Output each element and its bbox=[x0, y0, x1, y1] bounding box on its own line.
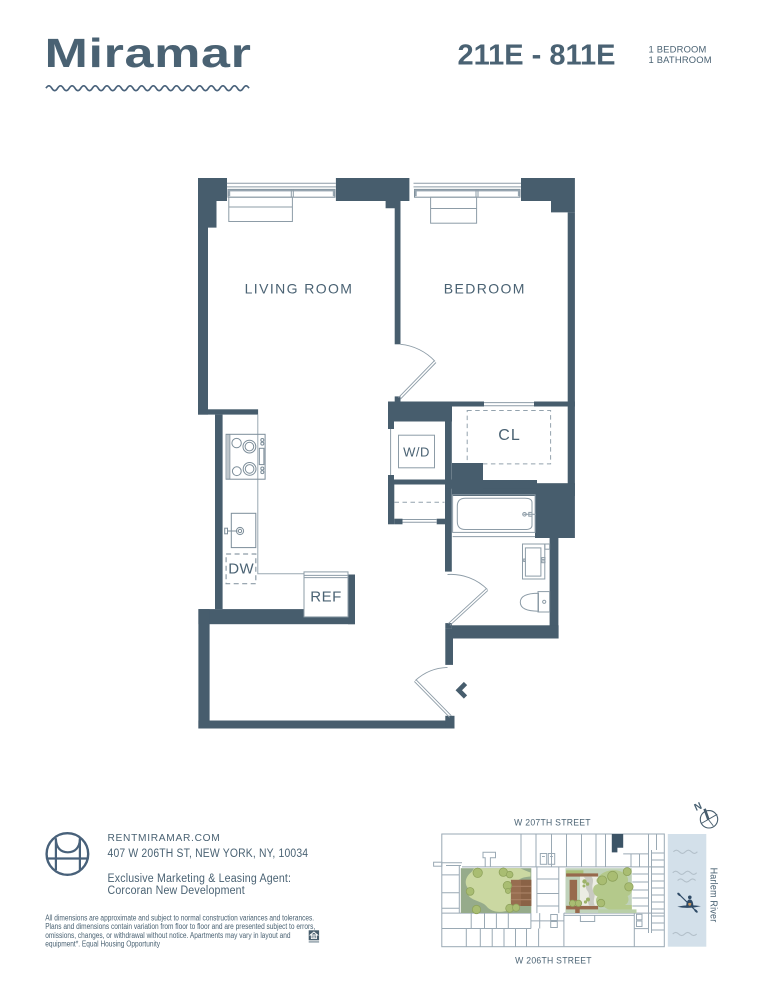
svg-text:BEDROOM: BEDROOM bbox=[444, 281, 526, 297]
svg-text:LIVING ROOM: LIVING ROOM bbox=[245, 281, 354, 297]
svg-text:Harlem River: Harlem River bbox=[708, 868, 719, 923]
svg-text:1 BEDROOM: 1 BEDROOM bbox=[649, 44, 707, 55]
svg-text:W 207TH STREET: W 207TH STREET bbox=[514, 817, 591, 828]
svg-text:DW: DW bbox=[228, 561, 254, 578]
svg-text:RENTMIRAMAR.COM: RENTMIRAMAR.COM bbox=[108, 833, 221, 844]
svg-text:CL: CL bbox=[498, 427, 520, 444]
svg-text:W/D: W/D bbox=[403, 445, 430, 460]
svg-text:Corcoran New Development: Corcoran New Development bbox=[108, 884, 246, 897]
svg-text:REF: REF bbox=[310, 589, 342, 606]
svg-text:211E - 811E: 211E - 811E bbox=[458, 40, 616, 72]
svg-text:W 206TH STREET: W 206TH STREET bbox=[515, 955, 592, 966]
svg-text:N: N bbox=[693, 801, 704, 814]
svg-text:1 BATHROOM: 1 BATHROOM bbox=[649, 54, 712, 65]
svg-text:Exclusive Marketing & Leasing: Exclusive Marketing & Leasing Agent: bbox=[108, 872, 292, 885]
svg-text:equipment*. Equal Housing Oppo: equipment*. Equal Housing Opportunity bbox=[45, 939, 160, 949]
svg-text:Miramar: Miramar bbox=[45, 30, 252, 75]
svg-text:407 W 206TH ST, NEW YORK, NY,: 407 W 206TH ST, NEW YORK, NY, 10034 bbox=[108, 847, 309, 860]
